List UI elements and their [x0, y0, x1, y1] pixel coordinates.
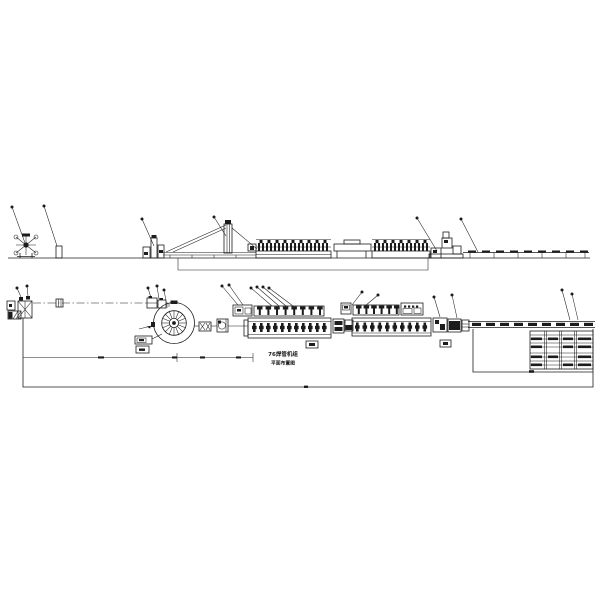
- operator-console-plan: [221, 284, 253, 317]
- legend-boxes: [135, 334, 162, 353]
- caption-line1: 76焊管机组: [268, 350, 298, 358]
- plan-view: 76焊管机组 平面布置图: [7, 284, 595, 389]
- prep-centerline: [33, 299, 148, 307]
- entry-guide-plan: [195, 322, 218, 331]
- runout-rail-plan: [468, 289, 595, 328]
- boundary-tick: [304, 386, 308, 388]
- hf-welder-plan: [333, 303, 353, 333]
- forming-mill-elevation: [256, 240, 331, 259]
- support-post-elevation: [56, 246, 62, 258]
- sizing-mill-elevation: [372, 240, 430, 259]
- dimension-line: [23, 353, 253, 362]
- caption-line2: 平面布置图: [271, 360, 295, 367]
- welder-unit-elevation: [334, 240, 371, 258]
- elevation-view: [8, 205, 590, 271]
- pinch-roll-plan: [217, 319, 248, 332]
- sizing-mill-plan: [352, 291, 431, 337]
- forming-mill-plan: [244, 286, 331, 349]
- cutoff-saw-plan: [433, 294, 470, 348]
- coil-cradle-elevation: [14, 234, 38, 259]
- strip-accumulator-elevation: [163, 220, 257, 258]
- drawing-caption: 76焊管机组 平面布置图: [268, 350, 298, 367]
- stacking-table-plan: [473, 329, 593, 373]
- coil-car-plan: [7, 285, 32, 320]
- foundation-pit-line: [178, 258, 428, 270]
- cutoff-saw-elevation: [429, 232, 463, 258]
- runout-table-elevation: [463, 251, 589, 259]
- drawing-canvas: 76焊管机组 平面布置图: [0, 0, 600, 600]
- pipe-mill-layout-drawing: 76焊管机组 平面布置图: [0, 0, 600, 600]
- entry-shear-elevation: [143, 235, 164, 258]
